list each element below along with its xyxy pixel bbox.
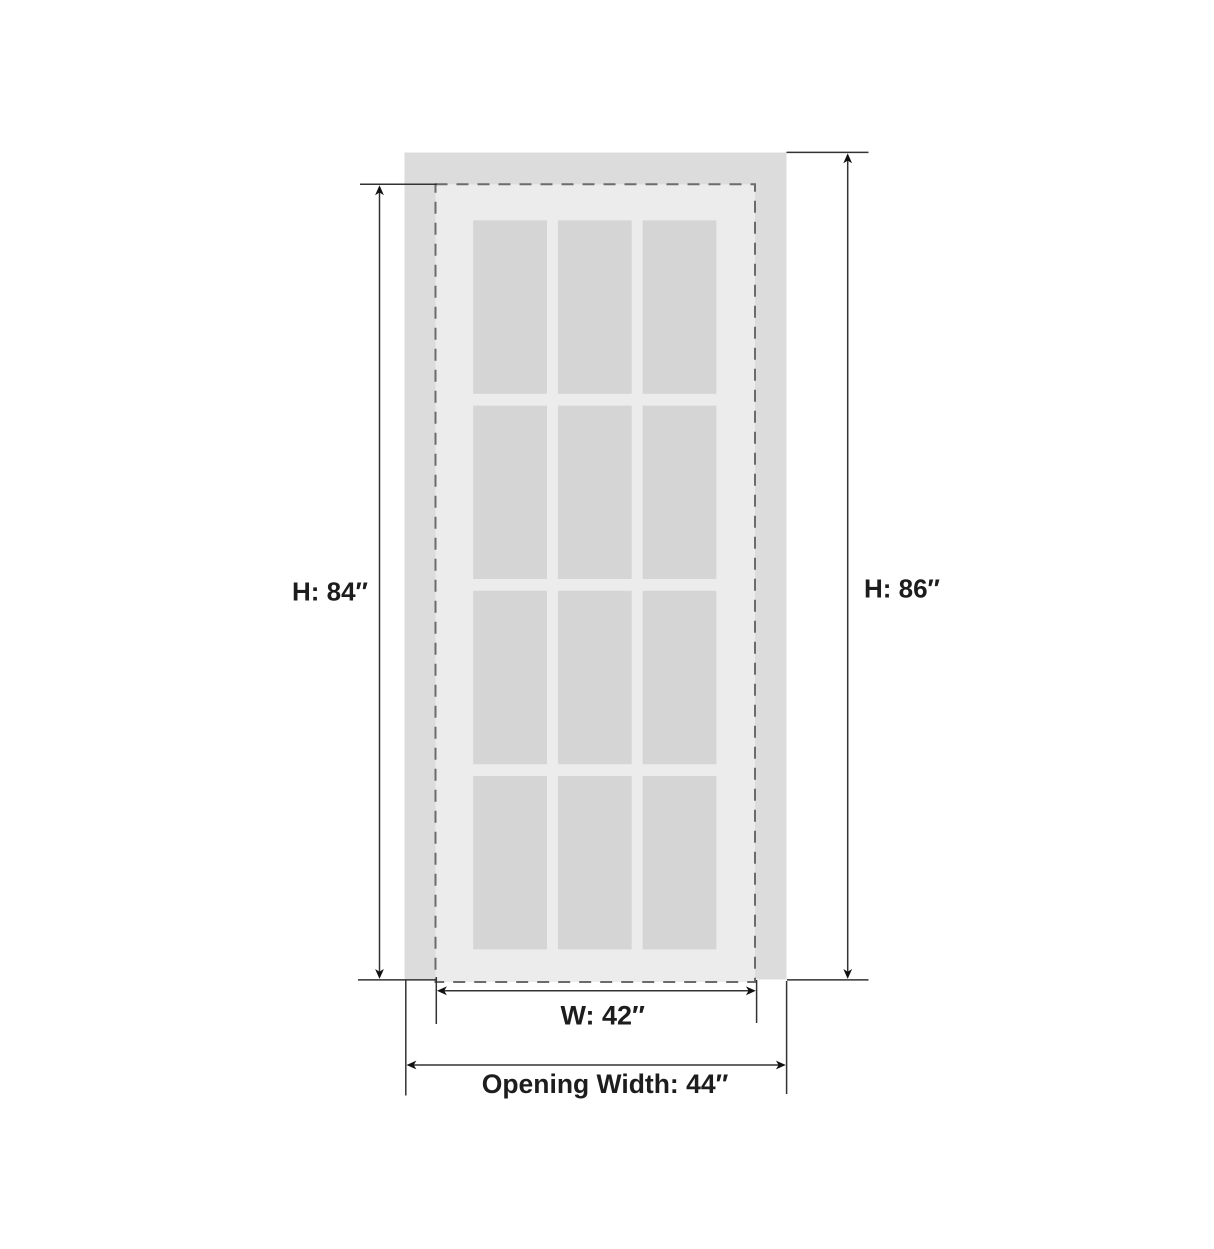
svg-text:H: 84″: H: 84″ bbox=[292, 577, 368, 607]
svg-text:Opening Width: 44″: Opening Width: 44″ bbox=[482, 1069, 729, 1099]
svg-text:H: 86″: H: 86″ bbox=[864, 573, 940, 603]
svg-text:W: 42″: W: 42″ bbox=[560, 1001, 645, 1031]
